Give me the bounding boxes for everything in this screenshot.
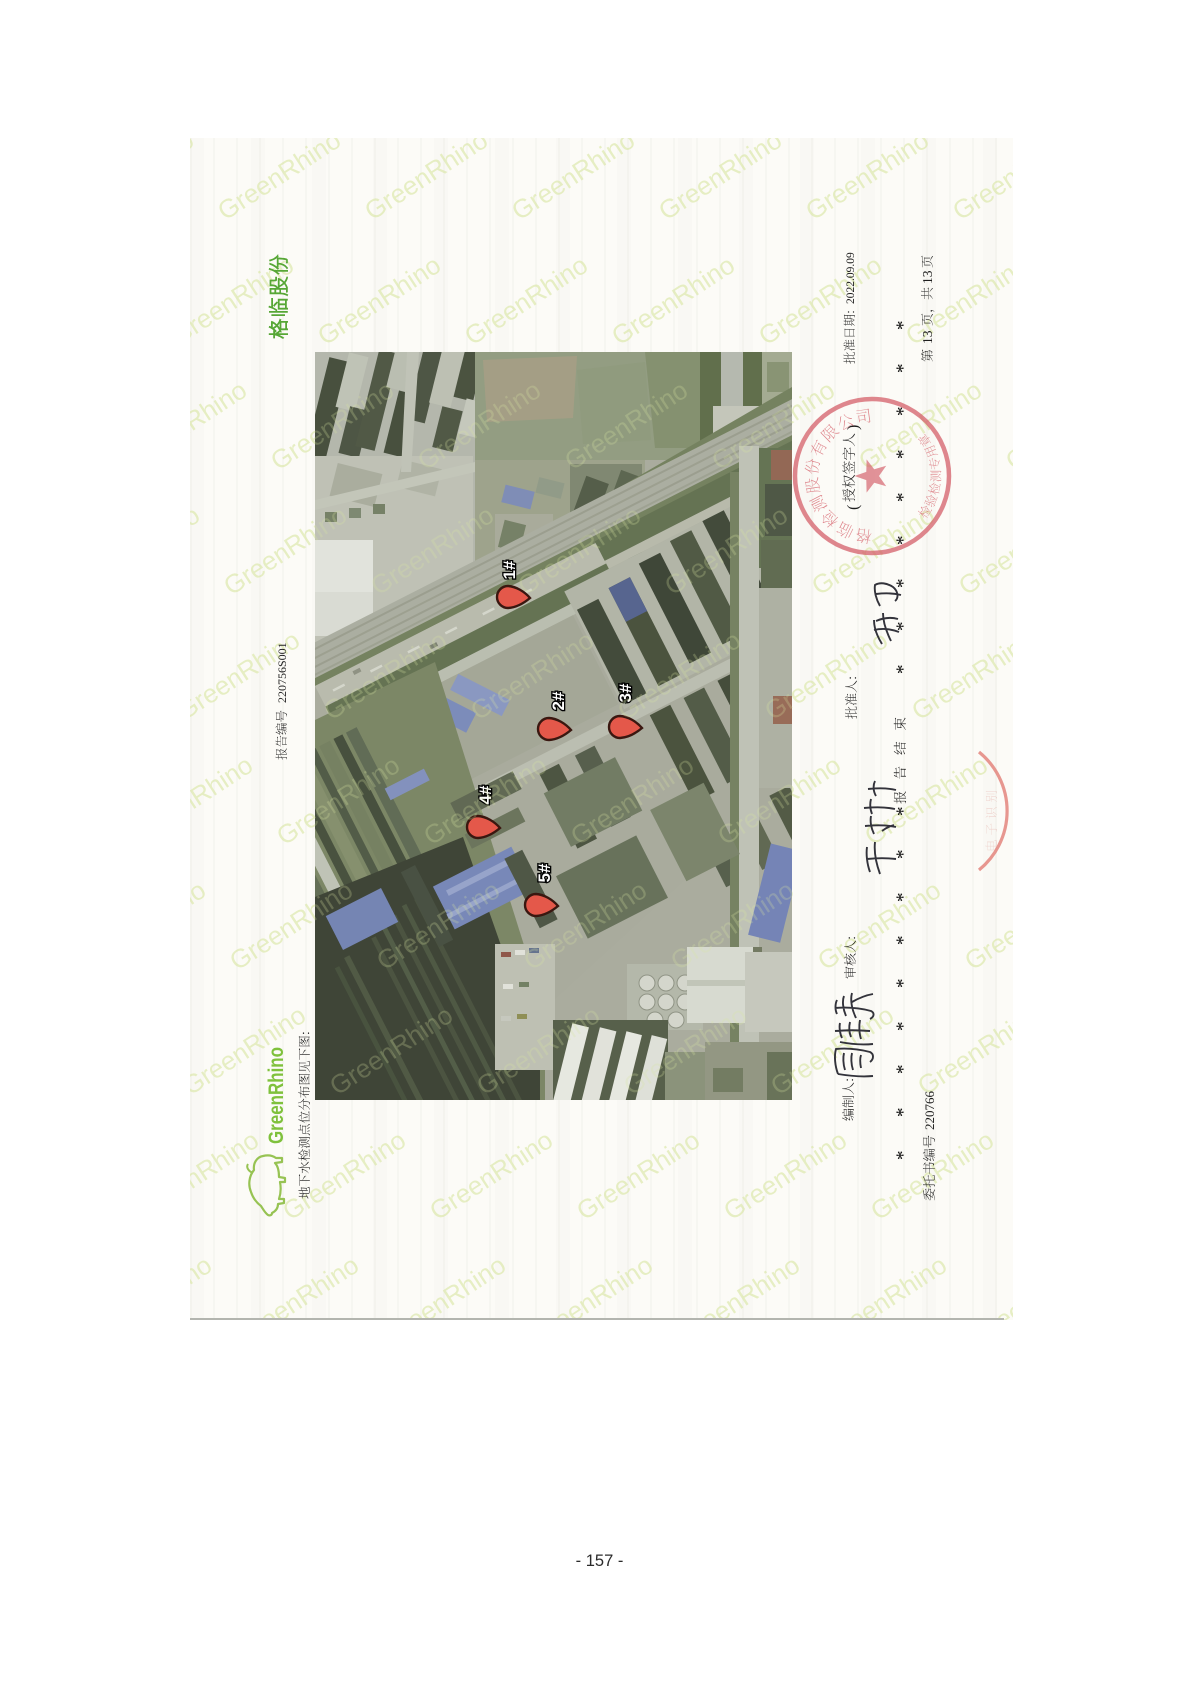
svg-text:*: * bbox=[893, 665, 914, 675]
svg-text:*: * bbox=[893, 979, 914, 989]
svg-text:*: * bbox=[893, 1151, 914, 1161]
svg-text:5#: 5# bbox=[535, 863, 554, 882]
svg-text:*: * bbox=[893, 1022, 914, 1032]
svg-text:*: * bbox=[893, 493, 914, 503]
svg-text:*: * bbox=[893, 364, 914, 374]
svg-text:1#: 1# bbox=[500, 560, 519, 579]
svg-text:*: * bbox=[893, 450, 914, 460]
svg-text:13: 13 bbox=[920, 330, 935, 344]
svg-text:*: * bbox=[893, 936, 914, 946]
svg-text:220756S001: 220756S001 bbox=[275, 642, 289, 703]
svg-text:GreenRhino: GreenRhino bbox=[265, 1047, 288, 1144]
svg-text:*: * bbox=[893, 807, 914, 817]
svg-text:3#: 3# bbox=[616, 683, 635, 702]
svg-text:*: * bbox=[893, 579, 914, 589]
svg-text:*: * bbox=[893, 1108, 914, 1118]
svg-text:(: ( bbox=[845, 505, 862, 510]
svg-text:4#: 4# bbox=[476, 785, 495, 804]
svg-text:*: * bbox=[893, 893, 914, 903]
svg-text:220766: 220766 bbox=[922, 1091, 937, 1131]
svg-text:*: * bbox=[893, 1065, 914, 1075]
svg-text:13: 13 bbox=[920, 270, 935, 284]
svg-text:*: * bbox=[893, 321, 914, 331]
svg-text:*: * bbox=[893, 622, 914, 632]
svg-text:*: * bbox=[893, 850, 914, 860]
svg-text:2#: 2# bbox=[549, 691, 568, 710]
svg-text:2022.09.09: 2022.09.09 bbox=[845, 252, 857, 304]
